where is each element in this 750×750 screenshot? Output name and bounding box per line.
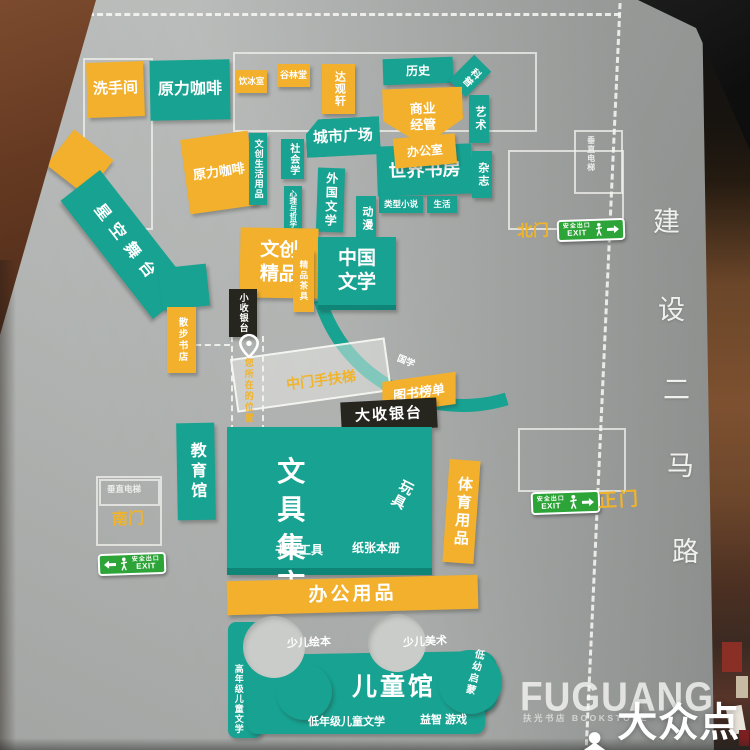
location-pin-icon — [236, 333, 262, 359]
area-art: 艺术 — [469, 95, 489, 143]
south-exit-sign: 安全出口EXIT — [98, 552, 167, 576]
street-char: 路 — [672, 530, 699, 569]
running-man-icon — [119, 557, 129, 571]
path-dashed-line — [262, 336, 264, 431]
street-char: 设 — [658, 288, 685, 327]
left-edge-shadow — [0, 260, 16, 750]
area-genre-fiction: 类型小说 — [379, 196, 423, 213]
map-north-boundary-dashed-line — [88, 13, 620, 16]
area-office-supplies: 办公用品 — [227, 575, 479, 616]
dianping-watermark: 大众点评 — [576, 690, 750, 750]
path-dashed-line — [231, 336, 233, 431]
area-education-hall: 教育馆 — [176, 423, 216, 521]
dianping-logo-icon — [576, 724, 613, 750]
north-elevator-label: 垂直电梯 — [586, 136, 596, 188]
area-magazine: 杂志 — [472, 151, 492, 198]
street-char: 二 — [663, 368, 690, 407]
dianping-watermark-text: 大众点评 — [617, 690, 750, 750]
room-outline-main-gate — [518, 428, 626, 492]
south-elevator-label: 垂直电梯 — [107, 484, 141, 494]
kids-art-label: 少儿美术 — [403, 635, 448, 650]
area-ice-drink-room: 饮冰室 — [236, 70, 267, 93]
main-gate-label: 正门 — [597, 489, 640, 514]
writing-tools-label: 书写工具 — [275, 543, 323, 557]
junior-kids-literature-label: 低年级儿童文学 — [308, 716, 385, 729]
area-daguan-xuan: 达观轩 — [322, 64, 355, 114]
running-man-icon — [594, 223, 604, 237]
area-force-coffee-2: 原力咖啡 — [180, 131, 258, 215]
arrow-right-icon — [607, 225, 619, 233]
south-gate-label: 南门 — [112, 509, 145, 529]
area-city-plaza: 城市广场 — [305, 116, 381, 158]
area-force-coffee: 原力咖啡 — [149, 59, 230, 120]
area-washroom: 洗手间 — [86, 61, 145, 118]
area-gulin-hall: 谷林堂 — [277, 64, 310, 87]
area-starry-stage-foot — [158, 264, 210, 311]
area-psych-philosophy: 心理与哲学 — [284, 186, 302, 232]
senior-kids-literature-label: 高年级儿童文学 — [233, 664, 244, 738]
arrow-right-icon — [582, 498, 594, 506]
kids-hall-label: 儿童馆 — [352, 672, 436, 702]
north-gate-label: 北门 — [517, 221, 550, 241]
north-exit-sign: 安全出口EXIT — [557, 218, 626, 242]
store-map-photo: 洗手间 原力咖啡 饮冰室 谷林堂 达观轩 历史 科普 商业经管 城市广场 艺术 … — [0, 0, 750, 750]
area-cultural-life-goods: 文创生活用品 — [249, 133, 267, 205]
street-char: 建 — [653, 200, 680, 239]
area-chinese-literature: 中国文学 — [318, 237, 396, 310]
arrow-left-icon — [104, 561, 116, 569]
paper-notebooks-label: 纸张本册 — [352, 541, 400, 555]
kids-picture-books-label: 少儿绘本 — [287, 636, 332, 651]
street-char: 马 — [667, 444, 694, 483]
small-cashier-sign: 小收银台 — [229, 289, 257, 337]
area-office-room: 办公室 — [393, 133, 457, 168]
area-boutique-tea: 精品茶具 — [293, 250, 314, 312]
main-gate-exit-sign: 安全出口EXIT — [531, 490, 601, 515]
area-history: 历史 — [383, 57, 454, 85]
your-location-label: 您所在的位置 — [243, 358, 254, 434]
area-stroll-bookstore: 散步书店 — [167, 307, 196, 373]
area-foreign-literature: 外国文学 — [316, 168, 345, 233]
puzzle-games-label: 益智 游戏 — [420, 714, 467, 727]
shelf-item — [722, 642, 742, 672]
running-man-icon — [568, 495, 580, 510]
area-life: 生活 — [427, 196, 457, 213]
area-comics: 动漫 — [356, 196, 376, 242]
area-sociology: 社会学 — [281, 139, 304, 179]
